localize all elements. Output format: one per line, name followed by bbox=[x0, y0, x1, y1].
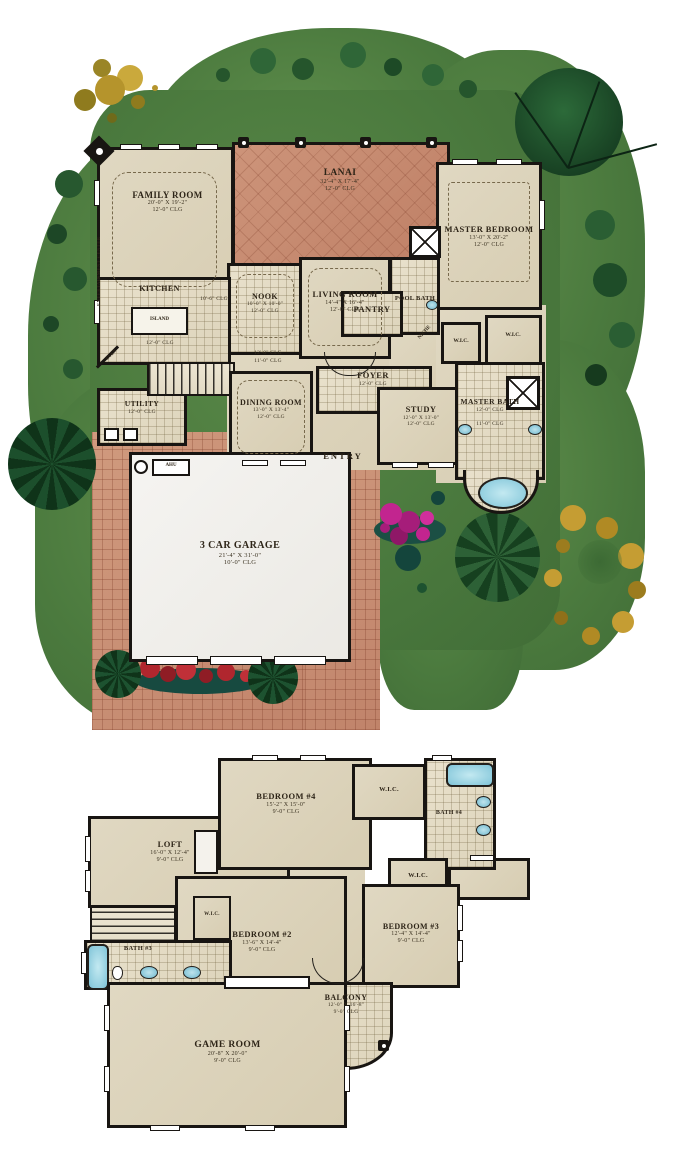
label-entry: ENTRY bbox=[312, 452, 374, 462]
label-bath3: BATH #3 bbox=[108, 945, 168, 952]
window bbox=[452, 159, 478, 165]
room-label-balcony: BALCONY 12'-0" X 16'-8" 9'-0" CLG bbox=[303, 993, 389, 1015]
room-label-garage: 3 CAR GARAGE 21'-4" X 31'-0" 10'-0" CLG bbox=[165, 540, 315, 566]
room-label-pool-bath: POOL BATH bbox=[392, 295, 438, 303]
room-label-loft: LOFT 16'-0" X 12'-4" 9'-0" CLG bbox=[125, 840, 215, 864]
label-dining-clg-lower: 11'-0" CLG bbox=[238, 358, 298, 364]
window bbox=[85, 836, 91, 862]
label-kitchen-clg: 12'-0" CLG bbox=[130, 340, 190, 346]
window bbox=[432, 755, 452, 761]
palm-left bbox=[8, 418, 96, 510]
tree-topright bbox=[515, 68, 623, 176]
water-heater-icon bbox=[134, 460, 148, 474]
window bbox=[280, 460, 306, 466]
bath4-tub bbox=[446, 763, 494, 787]
room-label-foyer: FOYER 12'-0" CLG bbox=[338, 371, 408, 387]
garage-door bbox=[210, 656, 262, 665]
label-island: ISLAND bbox=[134, 317, 185, 323]
label-dining-clg-upper: 12'-0" CLG bbox=[238, 350, 298, 356]
window bbox=[300, 755, 326, 761]
room-label-master-bath: MASTER BATH 12'-0" CLG 11'-0" CLG bbox=[458, 398, 522, 427]
dryer bbox=[123, 428, 138, 441]
master-tub bbox=[478, 477, 528, 509]
palm-center bbox=[455, 512, 540, 602]
shrub-row-left bbox=[55, 170, 83, 198]
window bbox=[252, 755, 278, 761]
label-entertainment-center: ENTERTAINMENT CENTER bbox=[96, 228, 106, 314]
room-label-nook: NOOK 10'-0" X 10'-0" 12'-0" CLG bbox=[230, 292, 300, 314]
room-label-pantry: PANTRY bbox=[344, 305, 400, 315]
tree-gold-right bbox=[560, 505, 586, 531]
lanai-column bbox=[295, 137, 306, 148]
tree-gold-topleft bbox=[95, 75, 125, 105]
label-wic-b2: W.I.C. bbox=[194, 912, 230, 918]
floor-plan-canvas: FAMILY ROOM 20'-0" X 19'-2" 12'-0" CLG E… bbox=[0, 0, 680, 1150]
room-label-bedroom4: BEDROOM #4 15'-2" X 15'-0" 9'-0" CLG bbox=[232, 792, 340, 816]
lanai-column bbox=[238, 137, 249, 148]
window bbox=[344, 1066, 350, 1092]
window bbox=[158, 144, 180, 150]
room-label-kitchen: KITCHEN bbox=[112, 284, 207, 293]
window bbox=[539, 200, 545, 230]
game-room-fireplace bbox=[224, 976, 310, 989]
window bbox=[196, 144, 218, 150]
washer bbox=[104, 428, 119, 441]
window bbox=[94, 180, 100, 206]
label-wic-b4: W.I.C. bbox=[362, 786, 416, 793]
label-ahu: AHU bbox=[153, 463, 189, 469]
window bbox=[470, 855, 494, 861]
window bbox=[245, 1125, 275, 1131]
window bbox=[120, 144, 142, 150]
window bbox=[392, 462, 418, 468]
label-wic-left: W.I.C. bbox=[443, 338, 479, 344]
bath4-sink bbox=[476, 824, 491, 836]
fireplace-dot bbox=[96, 148, 103, 155]
tree-branch bbox=[567, 81, 600, 168]
stairs-first-floor bbox=[147, 362, 235, 396]
window bbox=[242, 460, 268, 466]
garage-door bbox=[274, 656, 326, 665]
label-soffit-clg: 10'-6" CLG bbox=[188, 296, 240, 302]
garage-door bbox=[146, 656, 198, 665]
window bbox=[104, 1005, 110, 1031]
bath3-toilet bbox=[112, 966, 123, 980]
shrub-walk-right bbox=[395, 545, 421, 571]
pool-bath-shower bbox=[409, 226, 441, 258]
shrub-row-top bbox=[250, 48, 276, 74]
room-label-utility: UTILITY 12'-0" CLG bbox=[104, 400, 180, 415]
bath4-sink bbox=[476, 796, 491, 808]
bath3-tub bbox=[87, 944, 109, 990]
room-label-family: FAMILY ROOM 20'-0" X 19'-2" 12'-0" CLG bbox=[120, 190, 215, 214]
lanai-column bbox=[360, 137, 371, 148]
window bbox=[81, 952, 87, 974]
lanai-column bbox=[426, 137, 437, 148]
room-label-bedroom3: BEDROOM #3 12'-4" X 14'-4" 9'-0" CLG bbox=[364, 922, 458, 945]
room-label-dining: DINING ROOM 13'-0" X 13'-4" 12'-0" CLG bbox=[230, 398, 312, 420]
room-label-game: GAME ROOM 20'-8" X 20'-0" 9'-0" CLG bbox=[165, 1040, 290, 1065]
room-label-bedroom2: BEDROOM #2 13'-6" X 14'-4" 9'-0" CLG bbox=[208, 930, 316, 954]
bath3-sink bbox=[140, 966, 158, 979]
label-wic-b3: W.I.C. bbox=[392, 872, 444, 879]
window bbox=[104, 1066, 110, 1092]
label-bath4: BATH #4 bbox=[427, 810, 471, 817]
label-wic-right: W.I.C. bbox=[488, 332, 538, 338]
room-label-lanai: LANAI 32'-4" X 17'-4" 12'-0" CLG bbox=[290, 168, 390, 193]
master-sink bbox=[528, 424, 542, 435]
window bbox=[496, 159, 522, 165]
room-wic-right bbox=[485, 315, 542, 365]
window bbox=[428, 462, 454, 468]
room-label-study: STUDY 12'-0" X 13'-0" 12'-0" CLG bbox=[382, 405, 460, 427]
shrub-row-right bbox=[585, 210, 615, 240]
room-label-master-bedroom: MASTER BEDROOM 13'-0" X 20'-2" 12'-0" CL… bbox=[444, 225, 534, 249]
flower-bed-entry-right bbox=[380, 503, 402, 525]
balcony-planter bbox=[378, 1040, 389, 1051]
bath3-sink bbox=[183, 966, 201, 979]
window bbox=[85, 870, 91, 892]
window bbox=[150, 1125, 180, 1131]
tree-gold-right-center bbox=[578, 540, 622, 584]
